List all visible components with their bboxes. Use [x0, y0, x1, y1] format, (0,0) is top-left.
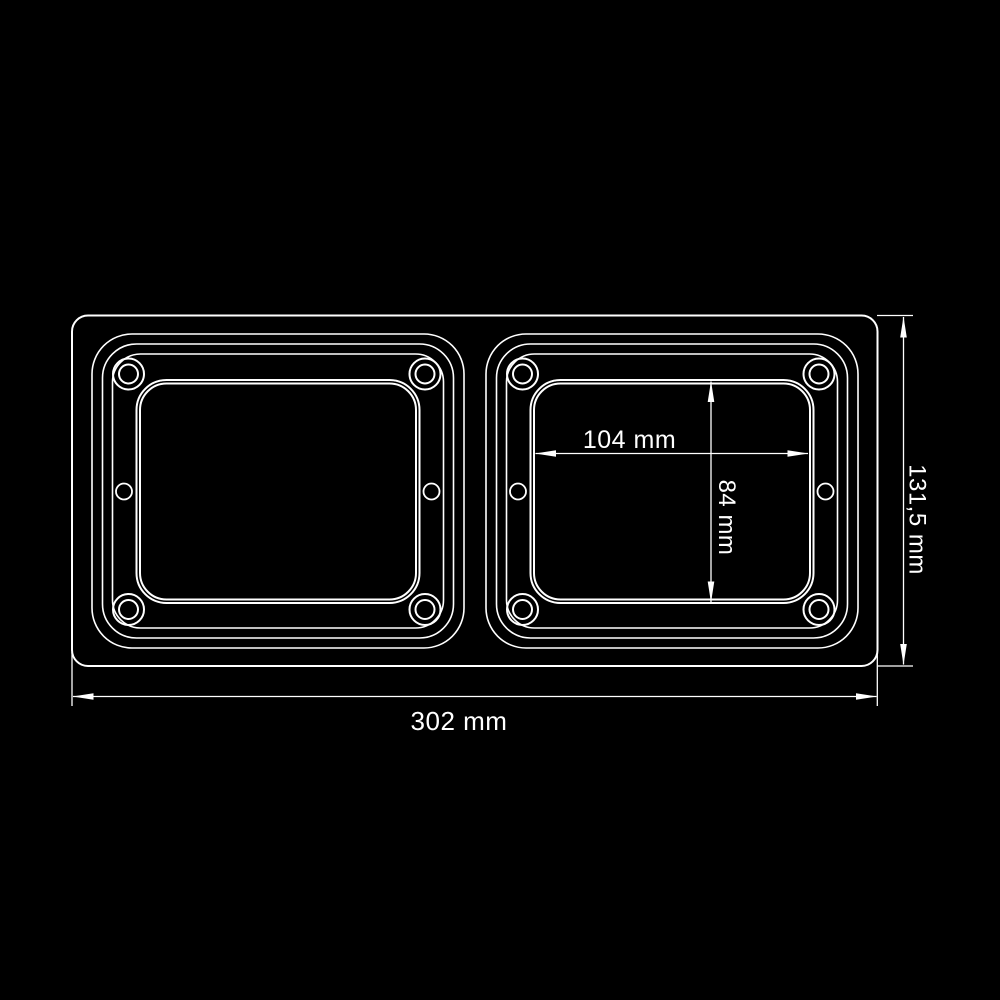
arrowhead-up [900, 317, 907, 338]
overall-height-label: 131,5 mm [904, 464, 931, 575]
arrowhead-left [73, 693, 94, 700]
arrowhead-left [535, 450, 556, 457]
lamp-body-outline [72, 316, 878, 667]
lens-height-label: 84 mm [713, 480, 740, 556]
drawing-page: 302 mm 131,5 mm 104 mm 84 mm [0, 0, 1000, 1000]
dim-overall-width: 302 mm [72, 652, 877, 736]
dim-lens-width: 104 mm [535, 426, 809, 457]
dim-overall-height: 131,5 mm [877, 316, 931, 667]
right-lamp-housing [486, 334, 858, 648]
arrowhead-right [788, 450, 809, 457]
left-lamp-housing [92, 334, 464, 648]
lens-width-label: 104 mm [583, 426, 676, 454]
overall-width-label: 302 mm [411, 706, 508, 736]
arrowhead-right [856, 693, 877, 700]
drawing-canvas: 302 mm 131,5 mm 104 mm 84 mm [0, 0, 1000, 1000]
dim-lens-height: 84 mm [708, 381, 740, 603]
arrowhead-down [900, 644, 907, 665]
